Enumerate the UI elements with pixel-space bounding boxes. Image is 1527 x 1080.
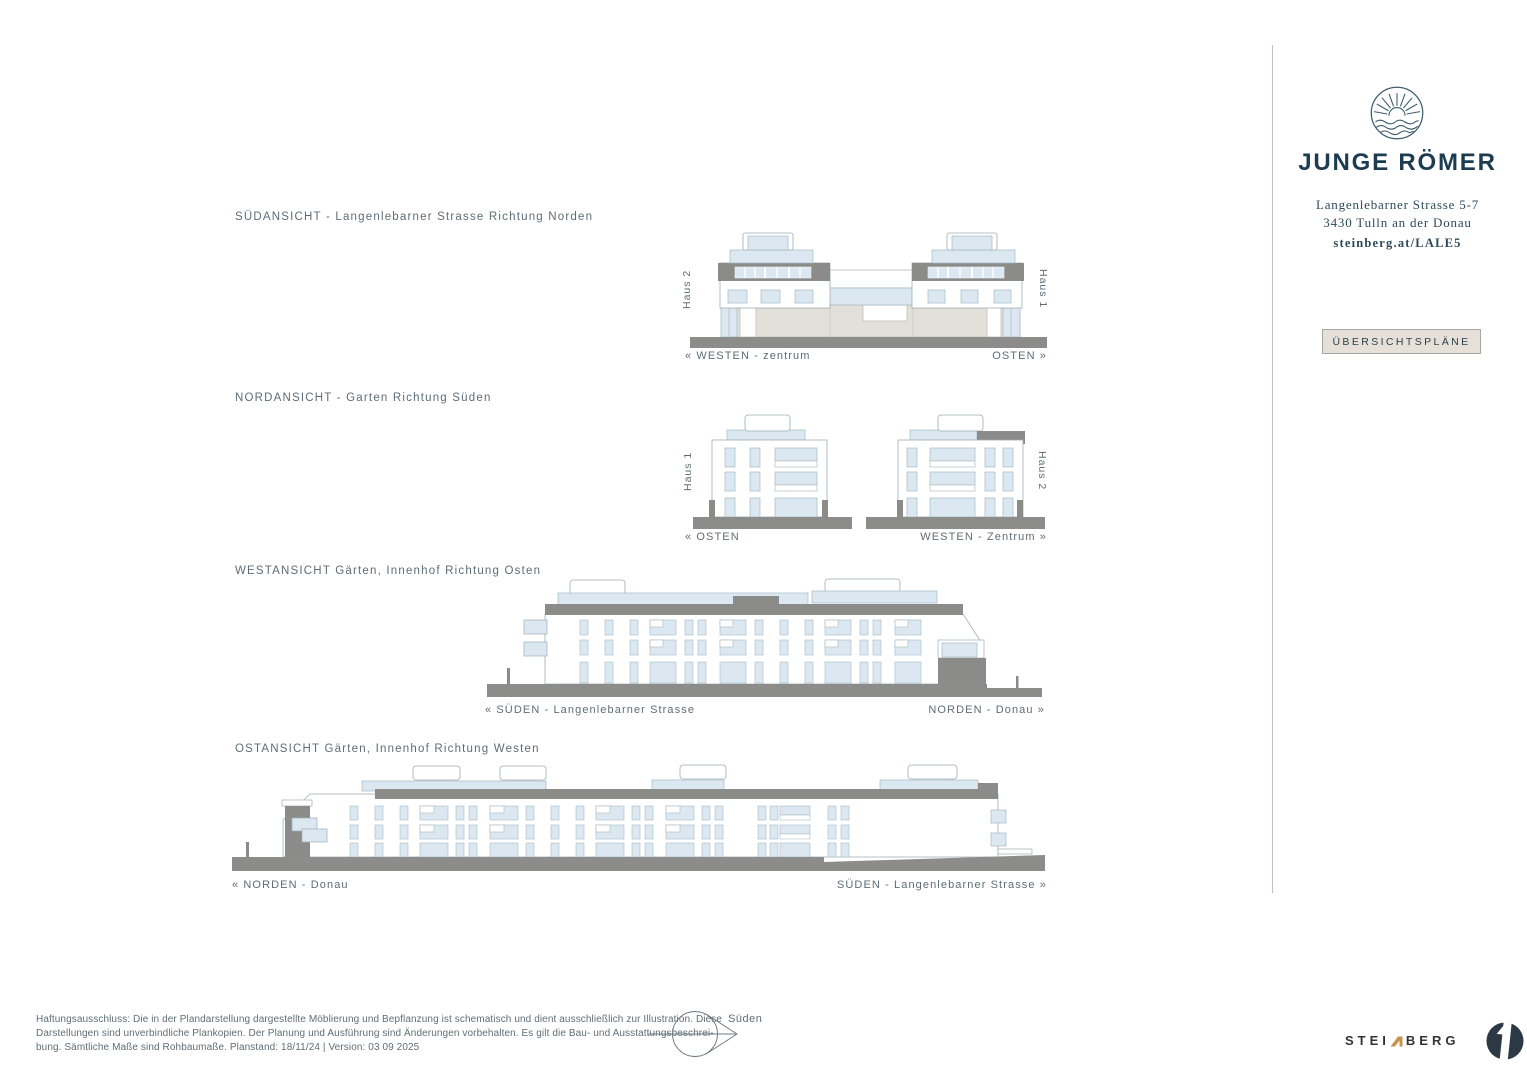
disclaimer-line: Darstellungen sind unverbindliche Planko… — [36, 1027, 722, 1041]
haus-label-right: Haus 1 — [1033, 252, 1049, 326]
disclaimer-line: bung. Sämtliche Maße sind Rohbaumaße. Pl… — [36, 1041, 722, 1055]
uebersichtsplaene-button[interactable]: ÜBERSICHTSPLÄNE — [1322, 329, 1481, 354]
elevation-drawing-westansicht — [480, 578, 1045, 708]
direction-labels-westansicht: « SÜDEN - Langenlebarner Strasse NORDEN … — [485, 704, 1045, 716]
elevation-title-suedansicht: SÜDANSICHT - Langenlebarner Strasse Rich… — [235, 211, 593, 223]
address-line-2: 3430 Tulln an der Donau — [1280, 214, 1515, 232]
elevation-drawing-nordansicht — [685, 410, 1090, 535]
direction-labels-suedansicht: « WESTEN - zentrum OSTEN » — [685, 350, 1047, 362]
haus-label-right: Haus 2 — [1032, 434, 1048, 508]
direction-labels-nordansicht: « OSTEN WESTEN - Zentrum » — [685, 531, 1047, 543]
steinberg-wordmark-left: STEI — [1345, 1033, 1390, 1048]
address-line-1: Langenlebarner Strasse 5-7 — [1280, 196, 1515, 214]
elevation-drawing-suedansicht — [685, 228, 1090, 353]
plan-sheet: SÜDANSICHT - Langenlebarner Strasse Rich… — [0, 0, 1527, 1080]
sun-waves-circle-icon — [1370, 86, 1424, 140]
panel-divider — [1272, 45, 1273, 893]
haus-label-left: Haus 1 — [682, 434, 698, 508]
direction-label-west: « WESTEN - zentrum — [685, 350, 811, 362]
direction-label-east: « OSTEN — [685, 531, 740, 543]
direction-label-south: « SÜDEN - Langenlebarner Strasse — [485, 704, 695, 716]
steinberg-circle-icon — [1486, 1022, 1524, 1060]
direction-label-north: NORDEN - Donau » — [928, 704, 1045, 716]
elevation-drawing-ostansicht — [228, 750, 1048, 875]
disclaimer-line: Haftungsausschluss: Die in der Plandarst… — [36, 1013, 722, 1027]
site-link[interactable]: steinberg.at/LALE5 — [1280, 236, 1515, 251]
direction-label-east: OSTEN » — [992, 350, 1047, 362]
haus-label-left: Haus 2 — [681, 252, 697, 326]
steinberg-wordmark-right: BERG — [1406, 1033, 1460, 1048]
disclaimer-text: Haftungsausschluss: Die in der Plandarst… — [36, 1013, 722, 1055]
steinberg-roof-n-icon — [1390, 1034, 1403, 1047]
direction-labels-ostansicht: « NORDEN - Donau SÜDEN - Langenlebarner … — [232, 879, 1047, 891]
direction-label-north: « NORDEN - Donau — [232, 879, 349, 891]
direction-label-west: WESTEN - Zentrum » — [920, 531, 1047, 543]
brand-wordmark: JUNGE RÖMER — [1280, 149, 1515, 177]
elevation-title-nordansicht: NORDANSICHT - Garten Richtung Süden — [235, 392, 492, 404]
brand-address: Langenlebarner Strasse 5-7 3430 Tulln an… — [1280, 196, 1515, 231]
direction-label-south: SÜDEN - Langenlebarner Strasse » — [837, 879, 1047, 891]
compass-label: Süden — [728, 1013, 762, 1025]
elevation-title-westansicht: WESTANSICHT Gärten, Innenhof Richtung Os… — [235, 565, 541, 577]
steinberg-logo: STEI BERG — [1345, 1033, 1459, 1048]
